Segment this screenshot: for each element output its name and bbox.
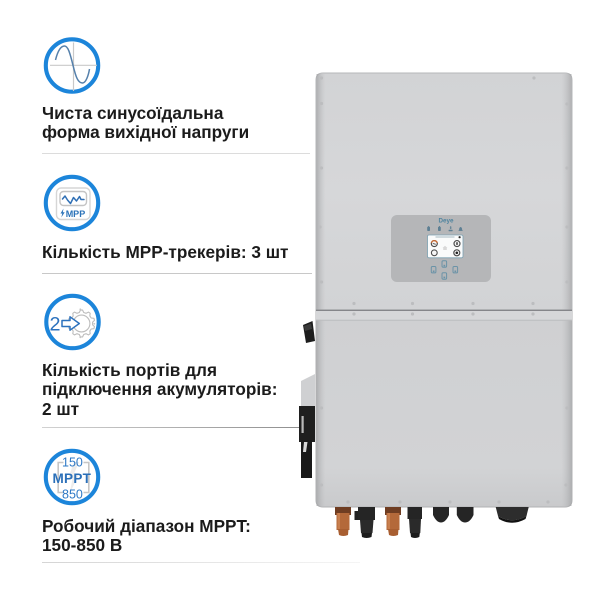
- svg-text:Deye: Deye: [439, 217, 455, 224]
